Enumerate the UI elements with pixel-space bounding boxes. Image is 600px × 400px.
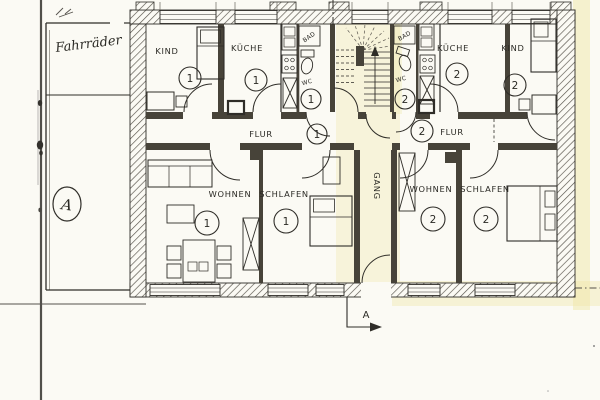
svg-text:1: 1 (187, 73, 194, 85)
window (408, 285, 440, 296)
room-label: WOHNEN (209, 189, 252, 199)
room-label: KIND (155, 46, 178, 56)
room-label: KÜCHE (231, 43, 263, 53)
corridor-gang: GANG (372, 172, 382, 200)
svg-text:1: 1 (204, 218, 211, 230)
room-label: KIND (501, 43, 524, 53)
window (352, 11, 388, 24)
room-label: SCHLAFEN (460, 184, 510, 194)
floor-plan-drawing: Fahrräder A (0, 0, 600, 400)
svg-text:2: 2 (402, 94, 409, 106)
svg-text:1: 1 (253, 75, 260, 87)
svg-text:2: 2 (430, 214, 437, 226)
gang-door-opening (361, 282, 391, 298)
window (316, 285, 344, 296)
svg-text:1: 1 (283, 216, 290, 228)
room-label: WOHNEN (410, 184, 453, 194)
svg-text:2: 2 (483, 214, 490, 226)
window (475, 285, 515, 296)
svg-text:1: 1 (308, 94, 315, 106)
corridor-label: GANG (372, 172, 382, 200)
room-label: FLUR (440, 127, 464, 137)
svg-text:1: 1 (314, 129, 321, 141)
svg-text:2: 2 (454, 69, 461, 81)
svg-text:2: 2 (512, 80, 519, 92)
section-label: A (363, 310, 370, 321)
window (268, 285, 308, 296)
floor-plan-sheet: Fahrräder A (0, 0, 600, 400)
window (235, 11, 277, 24)
window (448, 11, 492, 24)
window (160, 11, 216, 24)
stair-newel (356, 46, 364, 66)
room-label: SCHLAFEN (259, 189, 309, 199)
room-label: KÜCHE (437, 43, 469, 53)
room-label: FLUR (249, 129, 273, 139)
window (150, 285, 220, 296)
svg-text:2: 2 (419, 126, 426, 138)
